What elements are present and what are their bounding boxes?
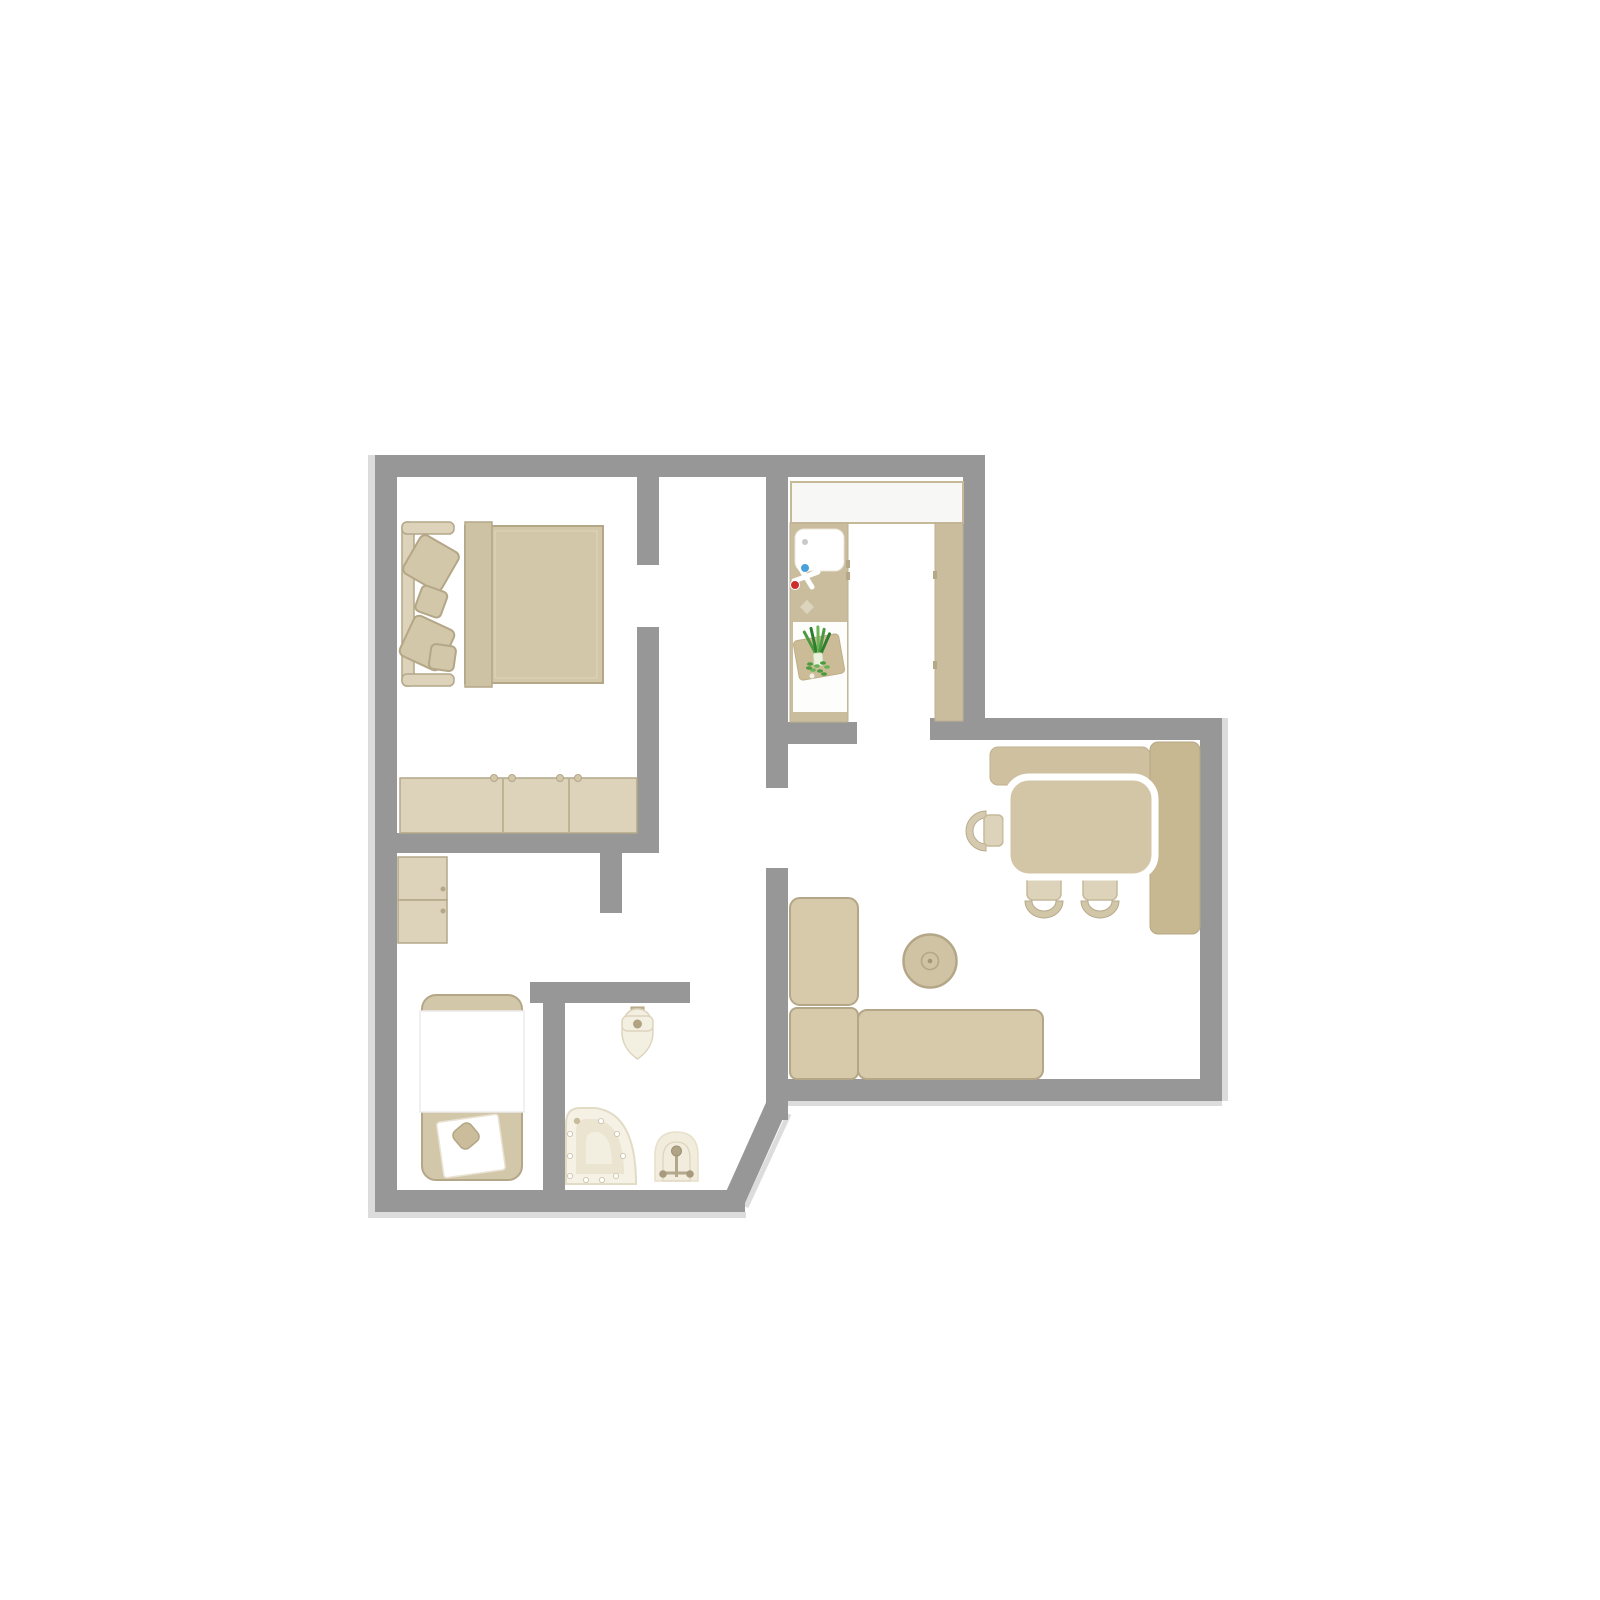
wall-living-left xyxy=(766,868,788,1120)
cabinet-upper xyxy=(398,857,447,900)
cutting-board-hole xyxy=(810,674,815,679)
floor-plan-canvas xyxy=(0,0,1600,1600)
shadow-bottom xyxy=(368,1212,746,1218)
shower-hinge xyxy=(574,1118,580,1124)
floor-plan xyxy=(0,0,1600,1600)
shower-screw xyxy=(598,1118,603,1123)
shadow-living-bottom xyxy=(788,1101,1222,1106)
shower-screw xyxy=(583,1177,588,1182)
bed-blanket-edge xyxy=(465,522,492,687)
wall-hall-stub xyxy=(600,853,622,913)
wall-bedroom-right-lower xyxy=(637,627,659,833)
room-kitchen xyxy=(790,482,963,722)
sofa-cushion-corner xyxy=(790,1008,858,1079)
wall-kitchen-right xyxy=(963,455,985,718)
basin-handle-left xyxy=(659,1170,667,1178)
wall-kitchen-bottom-stub xyxy=(788,722,857,744)
shower-screw xyxy=(613,1173,618,1178)
room-bedroom xyxy=(398,522,637,833)
counter-handle-2 xyxy=(846,572,850,580)
shower-screw xyxy=(567,1153,572,1158)
leek-bit xyxy=(817,669,823,673)
wall-living-bottom xyxy=(788,1079,1222,1101)
kitchen-upper-panel xyxy=(791,482,963,523)
daybed-duvet xyxy=(420,1011,524,1112)
basin-drain xyxy=(672,1146,682,1156)
shower-screw xyxy=(567,1173,572,1178)
kitchen-tall-cabinet xyxy=(935,523,963,721)
dresser-knob-4 xyxy=(575,775,582,782)
cabinet-handle-1 xyxy=(933,571,937,579)
cabinet-knob-2 xyxy=(441,909,446,914)
leek-bit xyxy=(821,672,827,676)
dresser-knob-3 xyxy=(557,775,564,782)
cabinet-handle-2 xyxy=(933,661,937,669)
ottoman-button xyxy=(928,959,933,964)
wall-bathroom-left xyxy=(543,1003,565,1190)
leek-bit xyxy=(807,662,813,666)
leek-bit xyxy=(806,666,812,670)
chair-2-backrest xyxy=(1081,901,1119,918)
chair-1-backrest xyxy=(1025,901,1063,918)
room-dining-living xyxy=(790,742,1200,1079)
sink-drain-dot xyxy=(802,539,808,545)
wall-bathroom-top xyxy=(530,982,690,1003)
shower-screw xyxy=(599,1177,604,1182)
wall-right xyxy=(1200,718,1222,1101)
pillow-small-bottom xyxy=(428,643,456,671)
pillow-small-middle xyxy=(414,584,449,619)
room-small xyxy=(398,857,524,1180)
faucet-cold-dot xyxy=(801,564,810,573)
shower-screw xyxy=(614,1131,619,1136)
dining-table xyxy=(1007,777,1155,877)
leek-bit xyxy=(820,661,826,665)
headboard-bench-bottom-arm xyxy=(402,674,454,686)
shower-screw xyxy=(620,1153,625,1158)
wall-kitchen-left xyxy=(766,477,788,788)
shower-screw xyxy=(567,1131,572,1136)
headboard-bench-top-arm xyxy=(402,522,454,534)
faucet-hot-dot xyxy=(791,581,800,590)
counter-handle-1 xyxy=(846,560,850,568)
shadow-right xyxy=(1222,718,1228,1101)
leek-bit xyxy=(824,665,830,669)
wall-bedroom-right-upper xyxy=(637,477,659,565)
sofa-cushion-horizontal xyxy=(858,1010,1043,1079)
leek-bit xyxy=(814,664,820,668)
wall-bottom xyxy=(375,1190,745,1212)
room-bathroom xyxy=(566,1007,698,1184)
dresser-knob-1 xyxy=(491,775,498,782)
cabinet-knob-1 xyxy=(441,887,446,892)
wall-bedroom-bottom xyxy=(397,833,659,853)
shadow-left xyxy=(368,455,375,1212)
basin-handle-right xyxy=(686,1170,694,1178)
side-chair-seat xyxy=(984,815,1003,846)
cabinet-lower xyxy=(398,900,447,943)
toilet-button xyxy=(633,1020,642,1029)
dresser-knob-2 xyxy=(509,775,516,782)
wall-dining-top xyxy=(930,718,1222,740)
dresser xyxy=(400,778,637,833)
wall-left xyxy=(375,455,397,1212)
sofa-cushion-vertical-top xyxy=(790,898,858,1005)
wall-top xyxy=(375,455,985,477)
side-chair-backrest xyxy=(966,811,986,851)
